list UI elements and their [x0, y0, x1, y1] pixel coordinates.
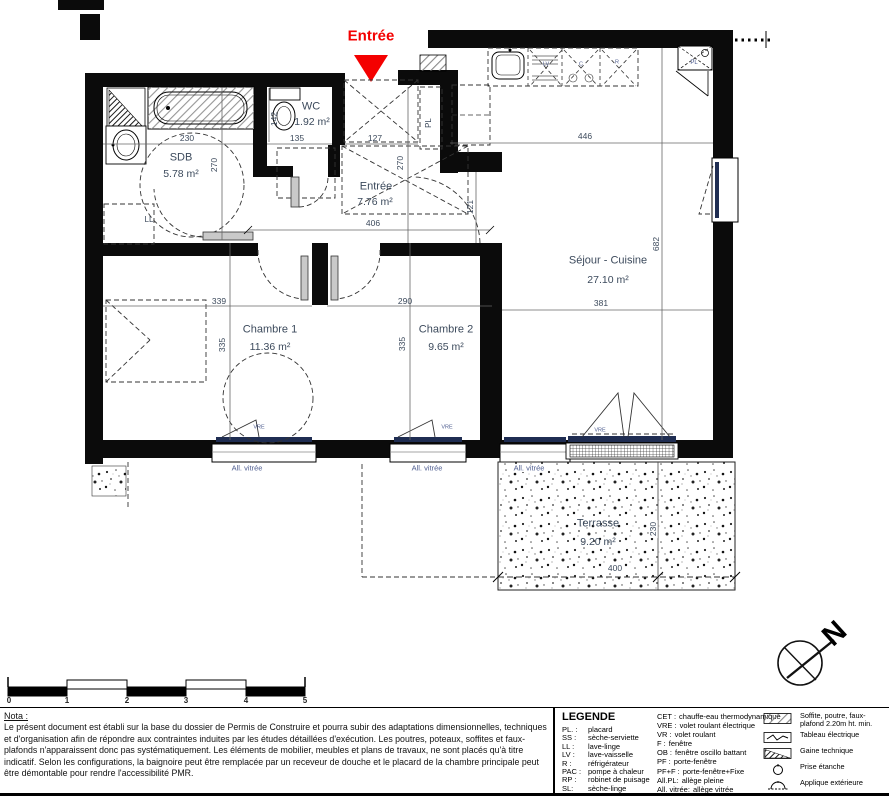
room-label-wc: WC: [302, 102, 320, 113]
room-area-chambre1: 11.36 m²: [250, 342, 291, 353]
placard-entree-label: PL: [425, 118, 433, 128]
dim-terrasse-height: 230: [649, 520, 658, 538]
gaine-technique: [107, 88, 145, 128]
legend-abbreviations-col1: PL. :placard SS :sèche-serviette LL :lav…: [562, 726, 650, 793]
legend-symbol-row: Gaine technique: [763, 747, 889, 760]
cuisson-label: C: [579, 62, 583, 68]
soffite-block: [420, 55, 446, 71]
dim-entree-height: 270: [396, 156, 405, 170]
dim-sejour-height: 682: [652, 237, 661, 251]
dim-chambre1-height: 335: [218, 338, 227, 352]
dim-entree-width: 127: [368, 134, 382, 143]
property-line: [735, 31, 774, 48]
dim-chambre2-height: 335: [398, 337, 407, 351]
soffite-hatch-icon: [763, 712, 793, 725]
north-compass-icon: [778, 640, 834, 685]
applique-exterieure-icon: [763, 779, 793, 792]
dim-sejour-width: 381: [594, 299, 608, 308]
scale-tick-1: 1: [65, 697, 69, 705]
allege-vitree-label-1: All. vitrée: [232, 464, 263, 472]
legend-symbol-row: Tableau électrique: [763, 731, 889, 744]
entry-label: Entrée: [348, 29, 395, 44]
dim-chambre1-width: 339: [212, 297, 226, 306]
legend-title: LEGENDE: [562, 711, 615, 723]
lave-linge-label: LL: [145, 216, 154, 224]
prise-etanche-icon: [763, 763, 793, 776]
dim-wc-width: 135: [290, 134, 304, 143]
dim-cuisine-width: 446: [578, 132, 592, 141]
dim-sdb-height: 270: [210, 158, 219, 172]
gaine-technique-icon: [763, 747, 793, 760]
entry-arrow-icon: [354, 55, 388, 82]
room-area-wc: 1.92 m²: [294, 117, 330, 128]
scale-tick-3: 3: [184, 697, 188, 705]
scale-bar: [8, 677, 305, 696]
room-area-sejour: 27.10 m²: [587, 275, 628, 286]
dim-hall-width: 406: [366, 219, 380, 228]
room-area-chambre2: 9.65 m²: [428, 342, 464, 353]
scale-tick-2: 2: [125, 697, 129, 705]
title-block: Nota : Le présent document est établi su…: [0, 707, 889, 796]
room-label-chambre1: Chambre 1: [243, 325, 297, 336]
room-area-entree: 7.76 m²: [357, 197, 393, 208]
allege-vitree-label-2: All. vitrée: [412, 464, 443, 472]
nota-body: Le présent document est établi sur la ba…: [4, 722, 548, 780]
exterior-speckle-patch: [92, 466, 126, 496]
washbasin: [106, 126, 146, 164]
dim-terrasse-width: 400: [606, 564, 624, 573]
room-label-sejour: Séjour - Cuisine: [569, 256, 647, 267]
allege-vitree-label-3: All. vitrée: [512, 464, 547, 472]
legend-panel: LEGENDE PL. :placard SS :sèche-serviette…: [553, 708, 889, 794]
room-label-entree: Entrée: [360, 182, 392, 193]
vre-label-2: VRE: [441, 425, 452, 431]
cet-placard-niche: [676, 46, 712, 96]
dim-chambre2-width: 290: [398, 297, 412, 306]
tableau-electrique-icon: [763, 731, 793, 744]
vre-label-3: VRE: [594, 428, 605, 434]
dim-passage-height: 121: [466, 200, 475, 214]
refrigerateur-label: R: [615, 60, 619, 66]
walls: [58, 0, 733, 464]
room-area-terrasse: 9.20 m²: [580, 537, 616, 548]
dim-sdb-width: 230: [180, 134, 194, 143]
nota-block: Nota : Le présent document est établi su…: [4, 711, 548, 780]
room-label-chambre2: Chambre 2: [419, 325, 473, 336]
legend-symbol-row: Prise étanche: [763, 763, 889, 776]
legend-symbols: Soffite, poutre, faux-plafond 2.20m ht. …: [763, 712, 889, 795]
scale-tick-5: 5: [303, 697, 307, 705]
dim-wc-height: 142: [270, 112, 279, 126]
lave-vaisselle-label: LV: [543, 62, 549, 68]
legend-row: SL:sèche-linge: [562, 785, 650, 793]
scale-tick-0: 0: [7, 697, 11, 705]
floor-plan-page: Entrée SDB 5.78 m² WC 1.92 m² Entrée 7.7…: [0, 0, 889, 800]
nota-title: Nota :: [4, 711, 548, 721]
room-area-sdb: 5.78 m²: [163, 169, 199, 180]
scale-tick-4: 4: [244, 697, 248, 705]
vre-label-1: VRE: [253, 425, 264, 431]
legend-symbol-row: Applique extérieure: [763, 779, 889, 792]
room-label-terrasse: Terrasse: [577, 519, 619, 530]
room-label-sdb: SDB: [170, 153, 193, 164]
placard-cuisine-label: PL: [690, 60, 697, 66]
bathtub: [148, 87, 254, 129]
legend-symbol-row: Soffite, poutre, faux-plafond 2.20m ht. …: [763, 712, 889, 728]
